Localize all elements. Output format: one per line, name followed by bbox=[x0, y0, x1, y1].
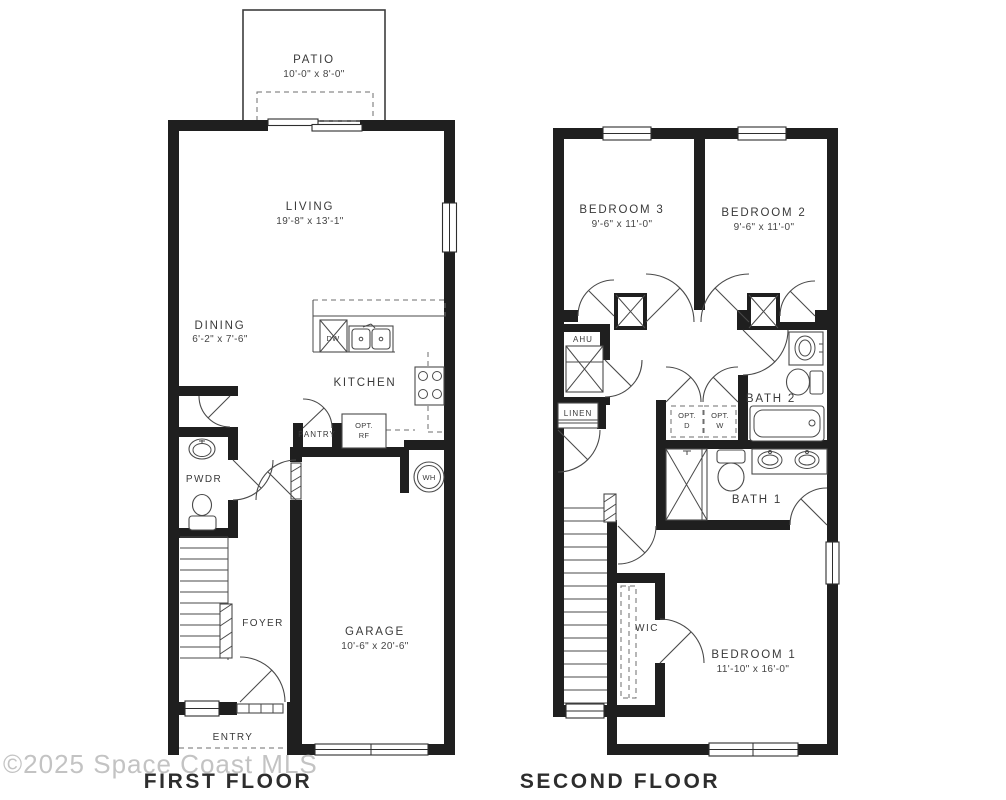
bedroom1-rear-window bbox=[709, 743, 798, 756]
living-window bbox=[443, 203, 457, 252]
bath2-door bbox=[743, 330, 788, 375]
wic-shelves bbox=[621, 586, 636, 698]
pwdr-label: PWDR bbox=[186, 474, 222, 485]
dining-label: DINING bbox=[194, 320, 245, 332]
bedroom3-dims: 9'-6" x 11'-0" bbox=[592, 219, 653, 230]
coat-closet-door bbox=[199, 396, 230, 427]
opt-washer-label-line2: W bbox=[716, 421, 724, 430]
bedroom1-label: BEDROOM 1 bbox=[711, 649, 796, 661]
opt-dryer-label-line1: OPT. bbox=[678, 411, 696, 420]
linen-label: LINEN bbox=[564, 409, 593, 418]
bedroom2-dims: 9'-6" x 11'-0" bbox=[734, 222, 795, 233]
bedroom3-window bbox=[603, 127, 651, 140]
bedroom2-door bbox=[780, 281, 815, 316]
bedroom1-dims: 11'-10" x 16'-0" bbox=[717, 664, 790, 675]
first-floor-title: FIRST FLOOR bbox=[144, 770, 313, 793]
front-door bbox=[237, 657, 285, 713]
opt-dryer-label-line2: D bbox=[684, 421, 690, 430]
bath1-label: BATH 1 bbox=[732, 494, 782, 506]
pwdr-sink bbox=[189, 439, 215, 459]
range-stove bbox=[415, 367, 444, 405]
entry-label: ENTRY bbox=[213, 732, 254, 743]
wic-label: WIC bbox=[635, 623, 659, 634]
bedroom1-side-window bbox=[826, 542, 839, 584]
bedroom3-label: BEDROOM 3 bbox=[579, 204, 664, 216]
opt-fridge-label-line2: RF bbox=[359, 431, 370, 440]
ahu-unit bbox=[566, 346, 603, 392]
floor-plan-page: PATIO 10'-0" x 8'-0" LIVING 19'-8" x 13'… bbox=[0, 0, 1006, 800]
kitchen-fixtures bbox=[313, 300, 445, 492]
opt-washer-label-line1: OPT. bbox=[711, 411, 729, 420]
second-floor-plan: BEDROOM 3 9'-6" x 11'-0" BEDROOM 2 9'-6"… bbox=[553, 127, 839, 756]
bedroom3-closet bbox=[616, 295, 645, 328]
linen-door bbox=[558, 430, 600, 472]
bedroom1-door bbox=[618, 526, 656, 564]
bath1-fixtures bbox=[666, 449, 827, 520]
patio-label: PATIO bbox=[293, 54, 335, 66]
dining-dims: 6'-2" x 7'-6" bbox=[192, 334, 248, 345]
floor-plan-canvas: PATIO 10'-0" x 8'-0" LIVING 19'-8" x 13'… bbox=[0, 0, 1006, 800]
hall-double-door-right bbox=[701, 274, 749, 322]
ahu-label: AHU bbox=[573, 335, 593, 344]
opt-fridge-label-line1: OPT. bbox=[355, 421, 373, 430]
pwdr-door bbox=[233, 460, 273, 500]
stair-window bbox=[566, 704, 604, 718]
doors-first-floor bbox=[199, 396, 332, 713]
kitchen-label: KITCHEN bbox=[333, 377, 396, 389]
garage-door bbox=[315, 744, 428, 755]
laundry-door-right bbox=[703, 367, 738, 402]
living-dims: 19'-8" x 13'-1" bbox=[276, 216, 344, 227]
garage-dims: 10'-6" x 20'-6" bbox=[341, 641, 409, 652]
water-heater-label: WH bbox=[422, 473, 435, 482]
bedroom2-window bbox=[738, 127, 786, 140]
first-floor-plan: PATIO 10'-0" x 8'-0" LIVING 19'-8" x 13'… bbox=[168, 10, 457, 755]
bedroom2-label: BEDROOM 2 bbox=[721, 207, 806, 219]
pwdr-toilet bbox=[189, 495, 216, 531]
bath2-label: BATH 2 bbox=[746, 393, 796, 405]
dishwasher-label: DW bbox=[326, 334, 340, 343]
wic-door bbox=[660, 619, 704, 663]
pantry-door bbox=[303, 399, 332, 428]
stairs-first-floor bbox=[180, 537, 232, 660]
upper-cabinets bbox=[313, 300, 445, 316]
second-floor-title: SECOND FLOOR bbox=[520, 770, 720, 793]
ahu-door bbox=[605, 360, 642, 397]
hall-double-door-left bbox=[646, 274, 694, 322]
garage-label: GARAGE bbox=[345, 626, 405, 638]
living-label: LIVING bbox=[286, 201, 335, 213]
pantry-label: PANTRY bbox=[298, 430, 336, 439]
entry-window bbox=[185, 701, 219, 716]
patio-dims: 10'-0" x 8'-0" bbox=[283, 69, 345, 80]
garage-entry-door bbox=[256, 460, 301, 500]
foyer-label: FOYER bbox=[242, 618, 283, 629]
laundry-door-left bbox=[666, 367, 701, 402]
kitchen-sink bbox=[349, 324, 393, 352]
bath1-door bbox=[790, 488, 827, 525]
bedroom2-closet bbox=[749, 295, 778, 328]
bedroom3-door bbox=[578, 280, 614, 316]
